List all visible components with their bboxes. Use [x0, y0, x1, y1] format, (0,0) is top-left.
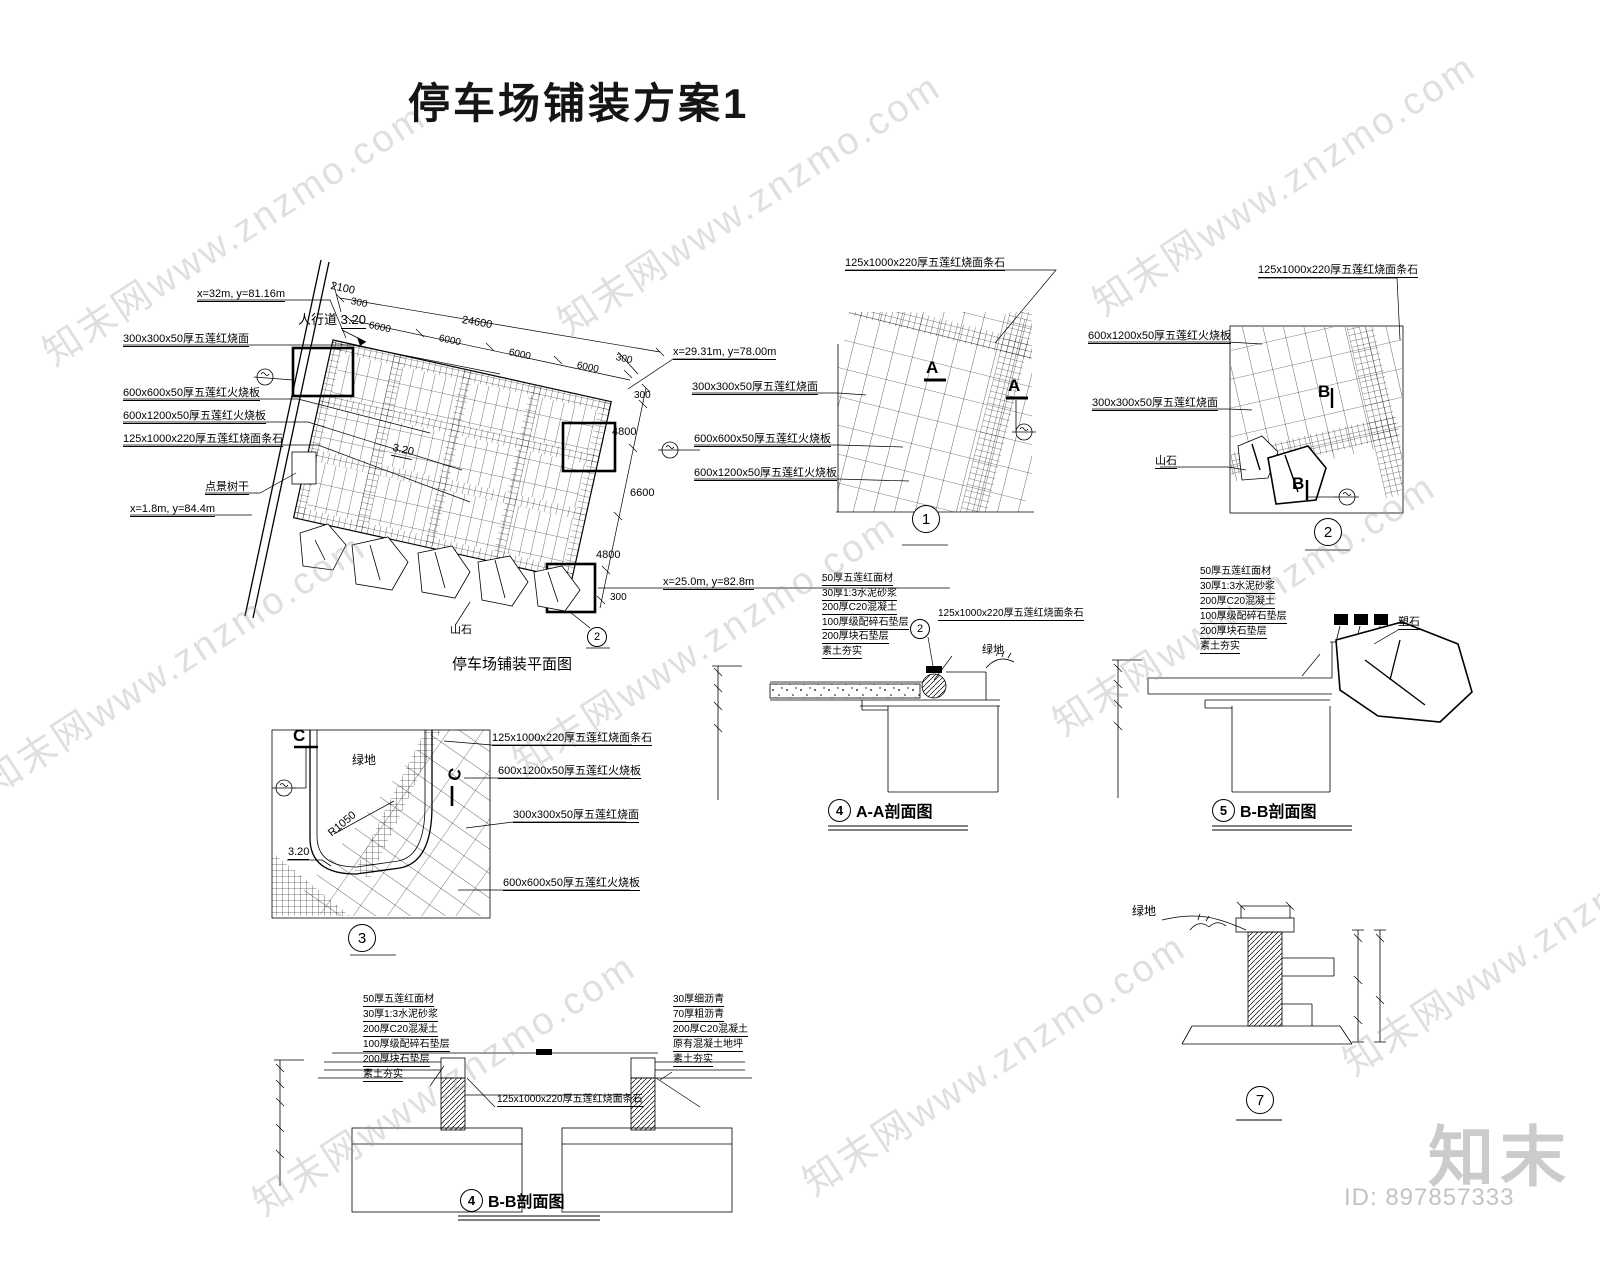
detail-number-3: 3	[348, 924, 376, 952]
detail7-linework	[1162, 902, 1386, 1120]
layer-note: 200厚块石垫层	[1200, 626, 1267, 639]
coord-note-left: x=1.8m, y=84.4m	[130, 503, 215, 517]
dim-4800: 4800	[596, 549, 620, 561]
material-callout-300: 300x300x50厚五莲红烧面	[1092, 397, 1218, 411]
sheet-title: 停车场铺装方案1	[408, 70, 749, 131]
layer-note: 30厚1:3水泥砂浆	[1200, 581, 1275, 594]
detail-ref-2: 2	[910, 619, 930, 639]
level-symbol	[254, 369, 293, 385]
layer-note: 素土夯实	[363, 1069, 403, 1082]
sidewalk-level: 3.20	[341, 312, 366, 329]
material-callout-600x1200: 600x1200x50厚五莲红火烧板	[123, 410, 266, 424]
material-callout-strip: 125x1000x220厚五莲红烧面条石	[845, 257, 1005, 271]
section-caption-text: B-B剖面图	[488, 1188, 564, 1212]
tree-callout: 点景树干	[205, 481, 249, 495]
material-callout-strip: 125x1000x220厚五莲红烧面条石	[938, 608, 1084, 621]
layer-note: 70厚粗沥青	[673, 1009, 724, 1022]
section-number: 5	[1212, 799, 1235, 822]
section-caption-text: A-A剖面图	[856, 798, 932, 822]
material-callout-300: 300x300x50厚五莲红烧面	[123, 333, 249, 347]
tree-pit	[292, 452, 316, 484]
green-area-label: 绿地	[352, 754, 376, 767]
section-caption-BB2: 4 B-B剖面图	[460, 1188, 564, 1212]
green-area-label: 绿地	[982, 644, 1004, 656]
material-callout-600x1200: 600x1200x50厚五莲红火烧板	[498, 765, 641, 779]
layer-note: 素土夯实	[822, 646, 862, 659]
material-callout-strip: 125x1000x220厚五莲红烧面条石	[123, 433, 283, 447]
layer-note: 30厚1:3水泥砂浆	[822, 588, 897, 601]
layer-note: 100厚级配碎石垫层	[822, 617, 909, 630]
layer-note: 200厚C20混凝土	[822, 602, 897, 615]
plan-caption: 停车场铺装平面图	[452, 657, 572, 674]
material-callout-strip: 125x1000x220厚五莲红烧面条石	[492, 732, 652, 746]
material-callout-300: 300x300x50厚五莲红烧面	[513, 809, 639, 823]
layer-note: 50厚五莲红面材	[1200, 566, 1271, 579]
section-number: 4	[828, 799, 851, 822]
section-marker-A: A	[1008, 376, 1020, 396]
cad-sheet: 知末网www.znzmo.com 知末网www.znzmo.com 知末网www…	[0, 0, 1600, 1280]
section-number: 4	[460, 1189, 483, 1212]
section-caption-AA: 4 A-A剖面图	[828, 798, 932, 822]
sculpted-rock	[1336, 622, 1472, 722]
material-callout-strip: 125x1000x220厚五莲红烧面条石	[497, 1094, 643, 1107]
sidewalk-label: 人行道	[298, 312, 337, 327]
dim-300: 300	[634, 390, 651, 401]
detail-number-7: 7	[1246, 1086, 1274, 1114]
section-marker-A: A	[926, 358, 938, 378]
cad-linework	[0, 0, 1600, 1280]
layer-note: 100厚级配碎石垫层	[363, 1039, 450, 1052]
layer-note: 50厚五莲红面材	[363, 994, 434, 1007]
rock-callout: 山石	[1155, 455, 1177, 469]
green-area-label: 绿地	[1132, 905, 1156, 918]
material-callout-600x1200: 600x1200x50厚五莲红火烧板	[694, 467, 837, 481]
detail-number-1: 1	[912, 505, 940, 533]
dim-4800: 4800	[612, 426, 636, 438]
coord-note-bottom: x=25.0m, y=82.8m	[663, 576, 754, 590]
sidewalk-note: 人行道 3.20	[298, 313, 366, 327]
grass-symbol	[1190, 914, 1226, 930]
sculpted-rock-label: 塑石	[1398, 616, 1420, 630]
layer-note: 30厚1:3水泥砂浆	[363, 1009, 438, 1022]
rock-callout: 山石	[450, 624, 472, 636]
dim-300: 300	[610, 592, 627, 603]
layer-note: 200厚C20混凝土	[673, 1024, 748, 1037]
layer-note: 200厚C20混凝土	[1200, 596, 1275, 609]
dim-6600: 6600	[630, 487, 654, 499]
level-symbol	[1335, 489, 1359, 505]
layer-note: 200厚块石垫层	[822, 631, 889, 644]
layer-note: 50厚五莲红面材	[822, 573, 893, 586]
coord-note-top: x=32m, y=81.16m	[197, 288, 285, 302]
material-callout-600x1200: 600x1200x50厚五莲红火烧板	[1088, 330, 1231, 344]
material-callout-600: 600x600x50厚五莲红火烧板	[123, 387, 260, 401]
layer-note: 200厚块石垫层	[363, 1054, 430, 1067]
section-caption-BB: 5 B-B剖面图	[1212, 798, 1316, 822]
material-callout-strip: 125x1000x220厚五莲红烧面条石	[1258, 264, 1418, 278]
layer-note: 素土夯实	[1200, 641, 1240, 654]
level-symbol	[272, 780, 296, 796]
detail2-linework	[1088, 233, 1438, 550]
section-marker-B: B	[1292, 474, 1304, 494]
layer-note: 素土夯实	[673, 1054, 713, 1067]
detail1-linework	[658, 263, 1072, 563]
section-marker-C: C	[293, 726, 305, 746]
detail-number-2: 2	[1314, 518, 1342, 546]
layer-note: 30厚细沥青	[673, 994, 724, 1007]
section-caption-text: B-B剖面图	[1240, 798, 1316, 822]
layer-note: 100厚级配碎石垫层	[1200, 611, 1287, 624]
material-callout-600: 600x600x50厚五莲红火烧板	[694, 433, 831, 447]
coord-note-right: x=29.31m, y=78.00m	[673, 346, 776, 360]
drawing-id: ID: 897857333	[1344, 1184, 1514, 1212]
level-label: 3.20	[288, 846, 309, 860]
curb-stone-section	[922, 674, 946, 698]
detail-ref-2: 2	[587, 627, 607, 647]
material-callout-300: 300x300x50厚五莲红烧面	[692, 381, 818, 395]
section-marker-B: B	[1318, 382, 1330, 402]
material-callout-600: 600x600x50厚五莲红火烧板	[503, 877, 640, 891]
layer-note: 200厚C20混凝土	[363, 1024, 438, 1037]
layer-note: 原有混凝土地坪	[673, 1039, 743, 1052]
